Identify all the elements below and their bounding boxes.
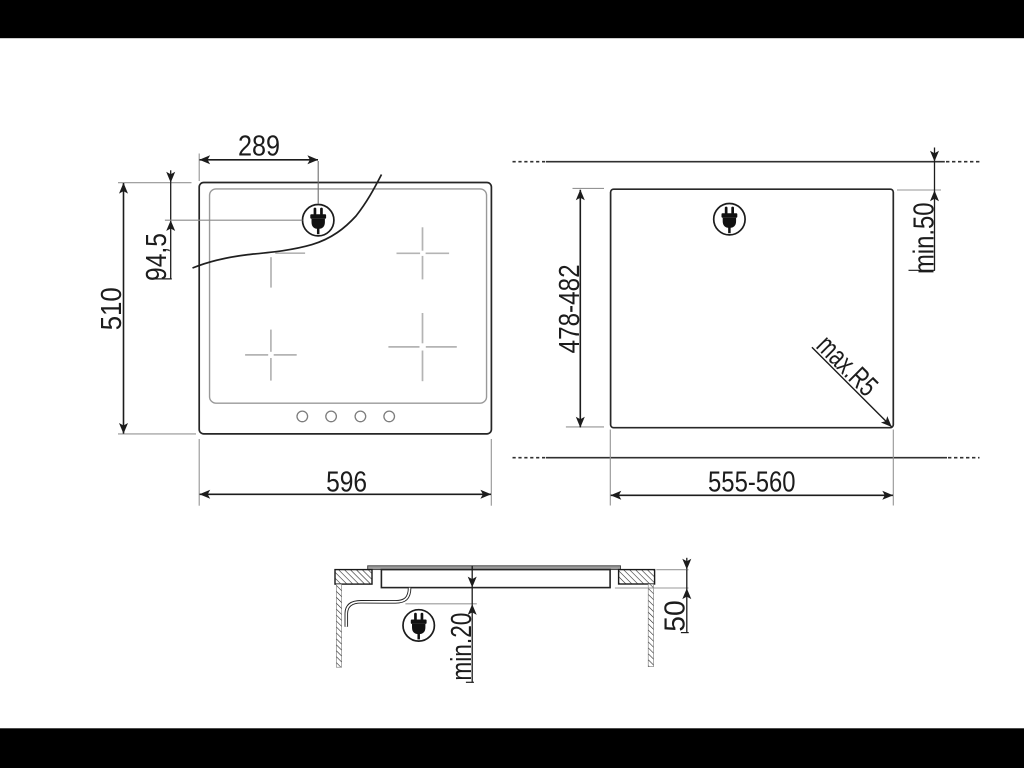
svg-text:478-482: 478-482 — [554, 264, 586, 353]
svg-text:596: 596 — [326, 467, 367, 499]
svg-text:555-560: 555-560 — [708, 467, 796, 499]
svg-text:94,5: 94,5 — [141, 233, 173, 281]
svg-text:50: 50 — [660, 600, 692, 632]
svg-text:min.50: min.50 — [908, 203, 940, 274]
svg-text:289: 289 — [238, 130, 280, 162]
svg-text:510: 510 — [96, 287, 128, 330]
svg-text:min.20: min.20 — [446, 613, 478, 681]
